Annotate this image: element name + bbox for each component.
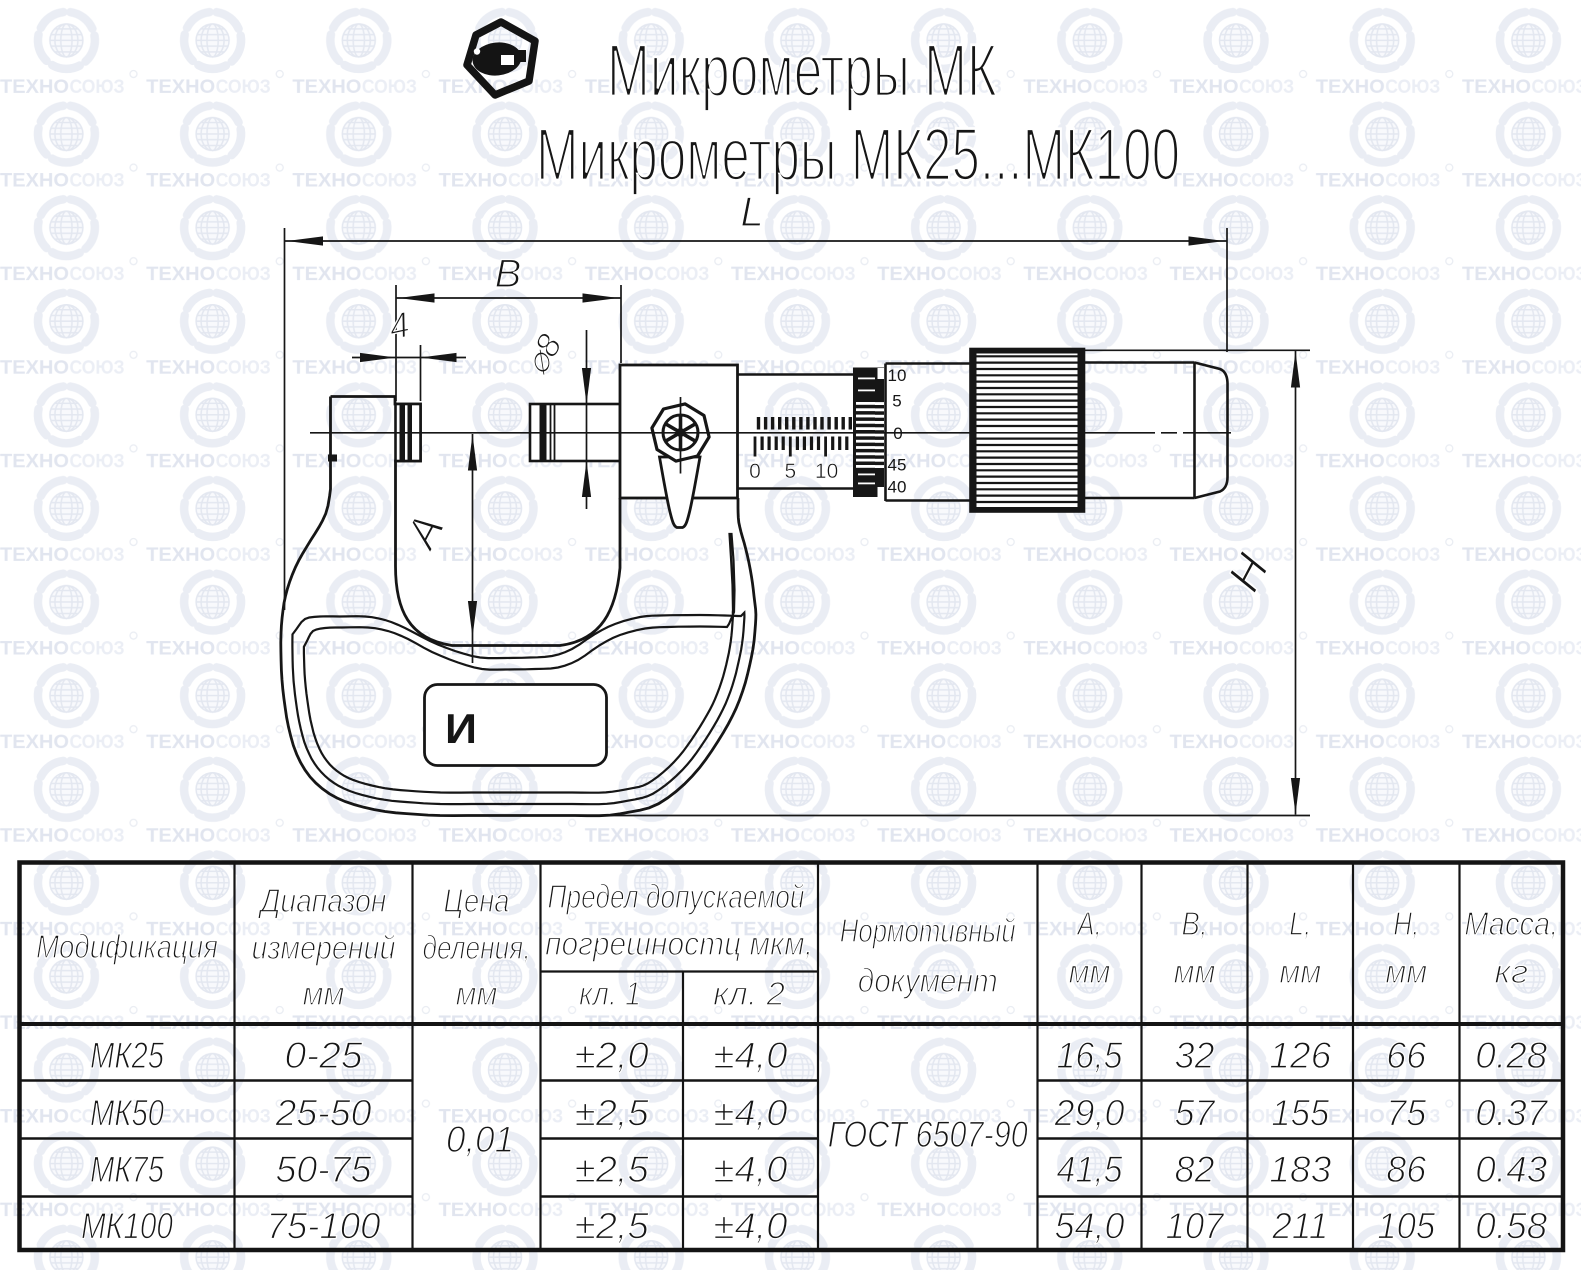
svg-text:мм: мм: [303, 975, 345, 1012]
svg-text:мм: мм: [1069, 953, 1111, 990]
svg-text:10: 10: [888, 366, 907, 385]
svg-text:107: 107: [1166, 1206, 1225, 1247]
svg-text:±4,0: ±4,0: [714, 1093, 788, 1134]
svg-text:40: 40: [888, 478, 907, 497]
svg-text:Масса,: Масса,: [1464, 905, 1558, 942]
svg-text:50-75: 50-75: [276, 1149, 372, 1190]
svg-text:Нормотивный: Нормотивный: [840, 912, 1016, 949]
svg-text:Микрометры МК25...МК100: Микрометры МК25...МК100: [536, 113, 1180, 196]
svg-text:Диапазон: Диапазон: [257, 882, 386, 919]
svg-text:мм: мм: [1174, 953, 1216, 990]
svg-text:мм: мм: [1385, 953, 1427, 990]
svg-text:А,: А,: [1076, 905, 1102, 942]
svg-text:0.43: 0.43: [1475, 1149, 1547, 1190]
svg-text:32: 32: [1175, 1035, 1215, 1076]
svg-text:0.37: 0.37: [1475, 1093, 1548, 1134]
svg-text:±2,0: ±2,0: [575, 1035, 649, 1076]
svg-text:погрешностц мкм,: погрешностц мкм,: [545, 925, 813, 962]
svg-text:29,0: 29,0: [1054, 1093, 1125, 1134]
svg-text:L: L: [740, 188, 763, 235]
svg-text:57: 57: [1175, 1093, 1216, 1134]
svg-text:ГОСТ 6507-90: ГОСТ 6507-90: [828, 1114, 1028, 1155]
svg-text:И: И: [445, 705, 477, 752]
svg-text:155: 155: [1271, 1093, 1329, 1134]
svg-text:0.28: 0.28: [1475, 1035, 1547, 1076]
svg-text:86: 86: [1386, 1149, 1426, 1190]
svg-text:10: 10: [815, 460, 838, 483]
svg-text:75: 75: [1386, 1093, 1426, 1134]
svg-text:МК75: МК75: [90, 1149, 164, 1190]
svg-text:54,0: 54,0: [1055, 1206, 1125, 1247]
svg-text:измерений: измерений: [252, 929, 396, 966]
svg-text:25-50: 25-50: [274, 1093, 371, 1134]
svg-text:0: 0: [749, 460, 761, 483]
svg-text:МК50: МК50: [90, 1093, 164, 1134]
svg-text:Предел допускаемой: Предел допускаемой: [548, 878, 805, 915]
svg-text:В,: В,: [1182, 905, 1208, 942]
svg-text:Н,: Н,: [1393, 905, 1419, 942]
svg-text:±2,5: ±2,5: [575, 1093, 649, 1134]
svg-text:183: 183: [1269, 1149, 1331, 1190]
svg-text:45: 45: [888, 456, 907, 475]
svg-text:75-100: 75-100: [267, 1206, 381, 1247]
svg-text:МК100: МК100: [81, 1206, 173, 1247]
svg-text:5: 5: [892, 392, 901, 411]
svg-text:деления,: деления,: [423, 929, 531, 966]
svg-text:126: 126: [1269, 1035, 1331, 1076]
svg-text:±2,5: ±2,5: [575, 1206, 649, 1247]
svg-text:41,5: 41,5: [1057, 1149, 1123, 1190]
svg-text:0-25: 0-25: [285, 1035, 363, 1076]
svg-text:Цена: Цена: [444, 882, 510, 919]
svg-text:105: 105: [1377, 1206, 1435, 1247]
svg-text:мм: мм: [1279, 953, 1321, 990]
svg-text:0.58: 0.58: [1475, 1206, 1547, 1247]
svg-text:66: 66: [1386, 1035, 1426, 1076]
svg-text:±4,0: ±4,0: [714, 1206, 788, 1247]
svg-text:16,5: 16,5: [1057, 1035, 1123, 1076]
svg-text:кл. 1: кл. 1: [579, 975, 641, 1012]
svg-text:211: 211: [1271, 1206, 1328, 1247]
svg-text:±4,0: ±4,0: [714, 1149, 788, 1190]
svg-text:±2,5: ±2,5: [575, 1149, 649, 1190]
svg-text:L,: L,: [1289, 905, 1311, 942]
svg-text:кл. 2: кл. 2: [713, 975, 785, 1012]
svg-text:5: 5: [784, 460, 796, 483]
svg-text:документ: документ: [858, 962, 998, 999]
svg-text:кг: кг: [1494, 953, 1528, 990]
svg-text:0,01: 0,01: [446, 1119, 514, 1160]
svg-text:мм: мм: [456, 975, 498, 1012]
svg-text:Микрометры МК: Микрометры МК: [607, 29, 997, 112]
svg-text:МК25: МК25: [90, 1035, 164, 1076]
svg-text:Модификация: Модификация: [36, 928, 218, 965]
svg-text:82: 82: [1175, 1149, 1215, 1190]
svg-text:B: B: [495, 252, 522, 296]
svg-text:±4,0: ±4,0: [714, 1035, 788, 1076]
